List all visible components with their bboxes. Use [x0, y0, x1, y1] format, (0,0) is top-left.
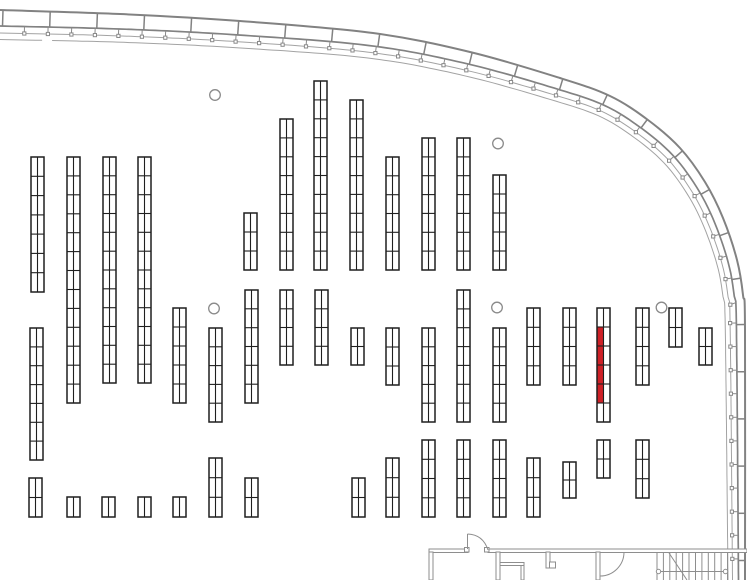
shelf-rack[interactable] [493, 440, 506, 517]
shelf-rack[interactable] [422, 328, 435, 422]
floor-plan [0, 0, 747, 580]
mullion-tick-foot [281, 43, 284, 46]
mullion-tick-foot [729, 322, 732, 325]
shelf-rack[interactable] [563, 462, 576, 498]
wall-panel-divider [603, 95, 608, 105]
partition-wall [429, 552, 433, 580]
stair-line-end [656, 569, 660, 573]
mullion-tick-foot [465, 69, 468, 72]
back-rooms [429, 534, 747, 580]
mullion-tick-foot [164, 36, 167, 39]
wall-panel-divider [332, 29, 333, 42]
wall-panel-divider [50, 12, 51, 28]
column-pillar [210, 90, 221, 101]
shelf-rack[interactable] [138, 157, 151, 383]
wall-panel-divider [701, 190, 710, 195]
mullion-tick-foot [730, 510, 733, 513]
mullion-tick-foot [509, 81, 512, 84]
mullion-tick-foot [729, 345, 732, 348]
shelf-rack[interactable] [597, 440, 610, 478]
shelf-rack[interactable] [173, 308, 186, 403]
mullion-tick-foot [719, 256, 722, 259]
shelf-rack[interactable] [314, 81, 327, 270]
mullion-tick-foot [668, 159, 671, 162]
bottom-wall [429, 549, 468, 553]
shelf-rack[interactable] [422, 138, 435, 270]
shelf-rack[interactable] [315, 290, 328, 365]
counter [550, 562, 556, 568]
shelf-rack[interactable] [351, 328, 364, 365]
wall-panel-divider [144, 15, 145, 30]
shelf-rack[interactable] [563, 308, 576, 385]
staircase[interactable] [656, 553, 727, 580]
shelf-rack[interactable] [457, 440, 470, 517]
shelf-rack[interactable] [245, 290, 258, 403]
shelf-rack[interactable] [527, 308, 540, 385]
wall-panel-divider [469, 53, 472, 65]
wall-panel-divider [238, 21, 239, 35]
mullion-tick-foot [634, 131, 637, 134]
mullion-tick-foot [140, 35, 143, 38]
shelf-rack[interactable] [102, 497, 115, 517]
mullion-tick-foot [532, 87, 535, 90]
wall-panel-divider [720, 233, 729, 236]
shelf-rack[interactable] [422, 440, 435, 517]
wall-panel-divider [641, 120, 647, 129]
shelf-rack[interactable] [67, 157, 80, 403]
wall-panel-divider [285, 25, 286, 39]
shelf-rack[interactable] [103, 157, 116, 383]
column-pillar [492, 302, 503, 313]
counter [521, 566, 524, 580]
mullion-tick-foot [729, 303, 732, 306]
mullion-tick-foot [374, 52, 377, 55]
shelf-rack[interactable] [457, 138, 470, 270]
wall-panel-divider [424, 42, 427, 54]
mullion-tick-foot [93, 34, 96, 37]
shelf-rack[interactable] [352, 478, 365, 517]
shelf-rack[interactable] [209, 328, 222, 422]
shelf-rack[interactable] [30, 328, 43, 460]
mullion-tick-foot [577, 101, 580, 104]
mullion-tick-foot [442, 64, 445, 67]
mullion-tick-foot [729, 392, 732, 395]
stair-break-line [669, 553, 687, 580]
stair-line-end [723, 569, 727, 573]
wall-panel-divider [378, 34, 380, 47]
mullion-ticks [23, 27, 739, 561]
shelf-rack[interactable] [636, 440, 649, 498]
mullion-tick-foot [70, 33, 73, 36]
wall-panel-divider [732, 278, 741, 279]
mullion-tick-foot [724, 278, 727, 281]
shelf-rack[interactable] [29, 478, 42, 517]
shelf-rack[interactable] [386, 458, 399, 517]
shelf-rack[interactable] [493, 328, 506, 422]
shelf-rack[interactable] [386, 157, 399, 270]
shelf-rack[interactable] [457, 290, 470, 422]
mullion-tick-foot [211, 39, 214, 42]
wall-panel-divider [560, 79, 563, 90]
mullion-tick-foot [730, 439, 733, 442]
shelf-rack[interactable] [280, 119, 293, 270]
mullion-tick-foot [304, 45, 307, 48]
shelf-rack[interactable] [669, 308, 682, 347]
shelf-rack[interactable] [493, 175, 506, 270]
wall-panel-divider [97, 13, 98, 28]
partition-wall [496, 552, 500, 580]
shelf-racks [29, 81, 712, 517]
wall-panel-divider [191, 18, 192, 32]
mullion-tick-foot [187, 37, 190, 40]
bottom-wall [488, 549, 747, 553]
mullion-tick-foot [730, 487, 733, 490]
shelf-rack[interactable] [209, 458, 222, 517]
shelf-rack[interactable] [280, 290, 293, 365]
mullion-tick-foot [731, 557, 734, 560]
shelf-rack[interactable] [527, 458, 540, 517]
mullion-tick-foot [258, 42, 261, 45]
door-swing-arc[interactable] [600, 552, 624, 576]
floor-plan-canvas [0, 0, 747, 580]
shelf-rack[interactable] [138, 497, 151, 517]
column-pillar [209, 303, 220, 314]
mullion-tick-foot [419, 59, 422, 62]
wall-panel-divider [514, 65, 517, 76]
mullion-tick-foot [652, 144, 655, 147]
mullion-tick-foot [730, 416, 733, 419]
highlighted-shelf-rack[interactable] [597, 308, 610, 422]
mullion-tick-foot [234, 40, 237, 43]
mullion-tick-foot [712, 235, 715, 238]
mullion-tick-foot [351, 49, 354, 52]
mullion-tick-foot [23, 32, 26, 35]
shelf-rack[interactable] [173, 497, 186, 517]
mullion-tick-foot [681, 176, 684, 179]
counter [500, 563, 524, 566]
mullion-tick-foot [554, 94, 557, 97]
shelf-rack[interactable] [699, 328, 712, 365]
mullion-tick-foot [616, 118, 619, 121]
mullion-tick-foot [397, 55, 400, 58]
mullion-tick-foot [730, 463, 733, 466]
shelf-rack[interactable] [31, 157, 44, 292]
mullion-tick-foot [693, 195, 696, 198]
partition-wall [596, 552, 600, 580]
shelf-rack[interactable] [636, 308, 649, 385]
mullion-tick-foot [731, 534, 734, 537]
shelf-rack[interactable] [244, 213, 257, 270]
shelf-rack[interactable] [350, 100, 363, 270]
mullion-tick-foot [117, 34, 120, 37]
mullion-tick-foot [328, 47, 331, 50]
column-pillar [656, 302, 667, 313]
wall-panel-divider [3, 10, 4, 26]
mullion-tick-foot [729, 369, 732, 372]
wall-panel-divider [675, 151, 683, 158]
mullion-tick-foot [46, 32, 49, 35]
column-pillar [493, 138, 504, 149]
shelf-rack[interactable] [67, 497, 80, 517]
perimeter-inner-line [0, 40, 42, 41]
pillars [209, 90, 667, 314]
shelf-rack[interactable] [386, 328, 399, 385]
door-jamb [465, 548, 470, 553]
mullion-tick-foot [487, 74, 490, 77]
shelf-rack[interactable] [245, 478, 258, 517]
mullion-tick-foot [597, 108, 600, 111]
mullion-tick-foot [703, 214, 706, 217]
